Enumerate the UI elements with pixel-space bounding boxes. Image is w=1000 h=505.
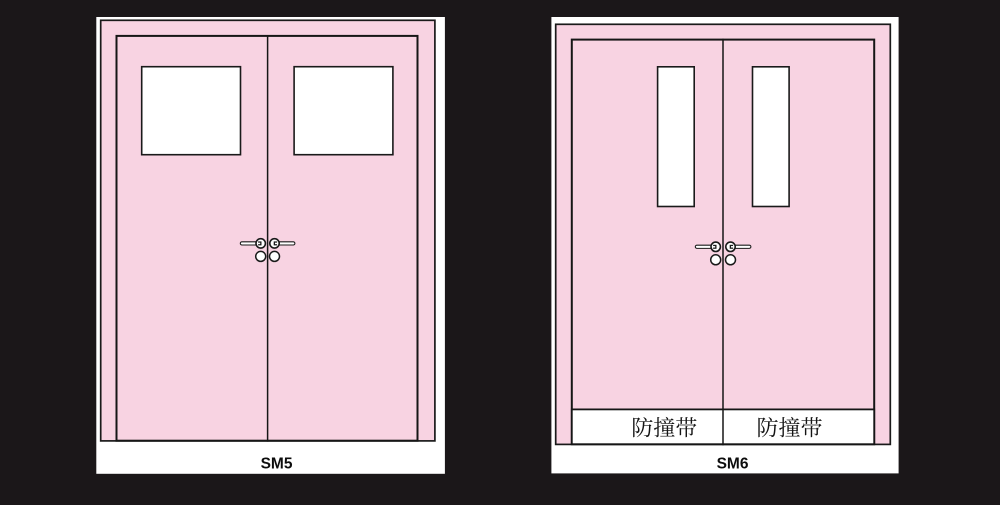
svg-text:SM5: SM5 bbox=[261, 456, 293, 473]
svg-text:SM6: SM6 bbox=[717, 456, 749, 473]
